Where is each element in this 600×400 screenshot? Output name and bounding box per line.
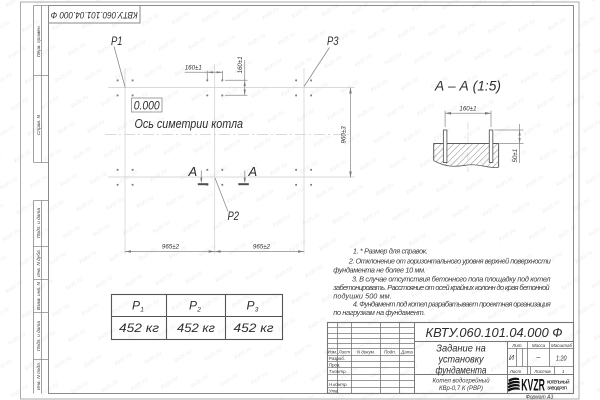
svg-text:1:20: 1:20 [556, 354, 567, 363]
svg-text:А – А (1:5): А – А (1:5) [434, 78, 501, 94]
svg-text:КВТУ.060.101.04.000 Ф: КВТУ.060.101.04.000 Ф [50, 10, 138, 20]
svg-text:Дата: Дата [400, 350, 413, 355]
svg-text:160±1: 160±1 [459, 106, 476, 113]
svg-text:160±1: 160±1 [185, 65, 202, 72]
svg-text:452 кг: 452 кг [234, 321, 274, 335]
svg-text:Масштаб: Масштаб [551, 343, 572, 348]
svg-text:N докум.: N докум. [357, 350, 375, 355]
svg-text:P3: P3 [327, 36, 339, 48]
svg-text:A: A [188, 164, 198, 179]
svg-text:фундамента: фундамента [436, 364, 487, 376]
svg-text:Изм.: Изм. [327, 350, 337, 355]
svg-text:Подп.: Подп. [384, 350, 396, 355]
svg-text:Взам. инв. N: Взам. инв. N [36, 282, 42, 310]
svg-text:Лист: Лист [338, 350, 351, 355]
svg-text:1: 1 [140, 307, 144, 314]
svg-text:452 кг: 452 кг [177, 321, 215, 335]
svg-text:965±2: 965±2 [253, 244, 271, 251]
svg-text:Задание на: Задание на [436, 343, 486, 354]
svg-text:–: – [535, 353, 541, 362]
svg-text:P: P [246, 299, 254, 313]
svg-text:KVZR: KVZR [521, 375, 545, 394]
svg-text:по нагрузкам на фундамент.: по нагрузкам на фундамент. [333, 308, 425, 317]
svg-text:Формат А3: Формат А3 [526, 395, 554, 400]
svg-text:Лист: Лист [509, 369, 522, 374]
svg-text:Подп. и дата: Подп. и дата [36, 321, 42, 351]
svg-text:P: P [132, 299, 140, 313]
svg-text:Лит.: Лит. [511, 343, 523, 348]
svg-text:Т.контр.: Т.контр. [329, 369, 347, 374]
svg-text:1. * Размер для справок.: 1. * Размер для справок. [353, 246, 428, 255]
svg-text:A: A [248, 164, 258, 179]
svg-text:Котел водогрейный: Котел водогрейный [432, 377, 490, 384]
svg-text:Справ. N: Справ. N [36, 114, 42, 135]
svg-text:Листов: Листов [533, 369, 551, 374]
svg-text:Масса: Масса [532, 343, 546, 348]
svg-text:КОТЕЛЬНЫЙ: КОТЕЛЬНЫЙ [547, 378, 570, 385]
svg-text:Инв. N подл.: Инв. N подл. [36, 362, 42, 390]
svg-text:Инв. N дубл.: Инв. N дубл. [36, 249, 42, 277]
svg-text:КВр-0,7 К (РВР): КВр-0,7 К (РВР) [439, 386, 483, 392]
svg-text:фундамента не более 10 мм.: фундамента не более 10 мм. [333, 265, 426, 274]
svg-text:452 кг: 452 кг [119, 321, 159, 335]
svg-text:Пров.: Пров. [329, 362, 341, 367]
svg-text:Перв. примен.: Перв. примен. [36, 25, 42, 57]
svg-text:Н.контр.: Н.контр. [329, 382, 348, 387]
svg-text:Подп. и дата: Подп. и дата [36, 208, 42, 238]
svg-text:2. Отклонение от горизонтально: 2. Отклонение от горизонтального уровня … [348, 257, 551, 266]
svg-text:Утв.: Утв. [329, 388, 339, 393]
svg-text:965±2: 965±2 [162, 244, 180, 251]
svg-text:160±1: 160±1 [237, 56, 244, 73]
svg-text:3: 3 [255, 307, 259, 314]
svg-text:P: P [189, 299, 197, 313]
svg-text:Разраб.: Разраб. [329, 356, 345, 361]
svg-text:установку: установку [438, 354, 485, 365]
svg-text:0.000: 0.000 [134, 101, 161, 113]
svg-text:2: 2 [196, 307, 201, 314]
svg-text:960±3: 960±3 [341, 126, 348, 144]
svg-text:P2: P2 [228, 211, 240, 223]
svg-text:50±1: 50±1 [512, 149, 519, 163]
svg-text:Ось симетрии котла: Ось симетрии котла [135, 116, 244, 131]
svg-text:P1: P1 [111, 36, 123, 48]
svg-text:КВТУ.060.101.04.000 Ф: КВТУ.060.101.04.000 Ф [426, 325, 563, 340]
svg-text:ЗАВОД РЭП: ЗАВОД РЭП [547, 385, 567, 390]
